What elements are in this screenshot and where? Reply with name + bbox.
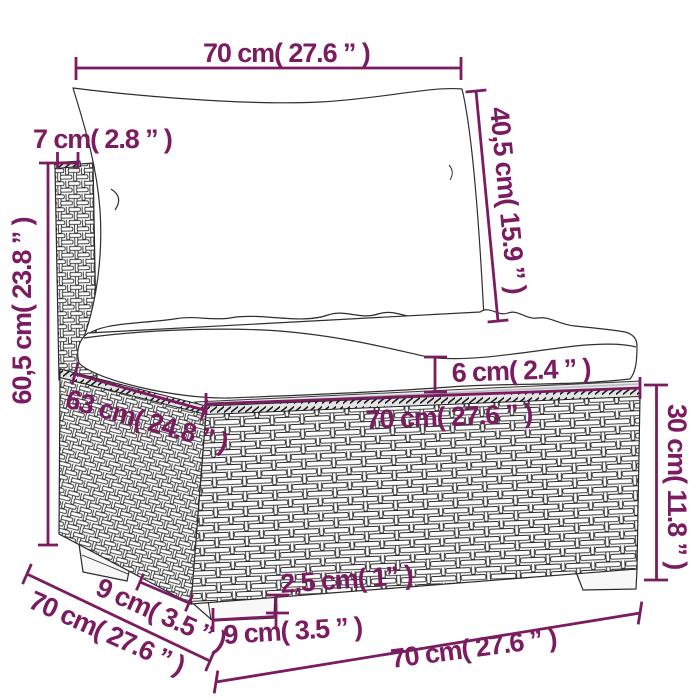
svg-text:7 cm( 2.8 ” ): 7 cm( 2.8 ” ) bbox=[33, 124, 172, 154]
svg-text:30 cm( 11.8 ” ): 30 cm( 11.8 ” ) bbox=[662, 404, 692, 569]
svg-text:6 cm( 2.4 ” ): 6 cm( 2.4 ” ) bbox=[451, 353, 591, 388]
svg-text:60,5 cm( 23.8 ” ): 60,5 cm( 23.8 ” ) bbox=[7, 217, 37, 404]
svg-text:70 cm( 27.6 ” ): 70 cm( 27.6 ” ) bbox=[203, 38, 370, 68]
